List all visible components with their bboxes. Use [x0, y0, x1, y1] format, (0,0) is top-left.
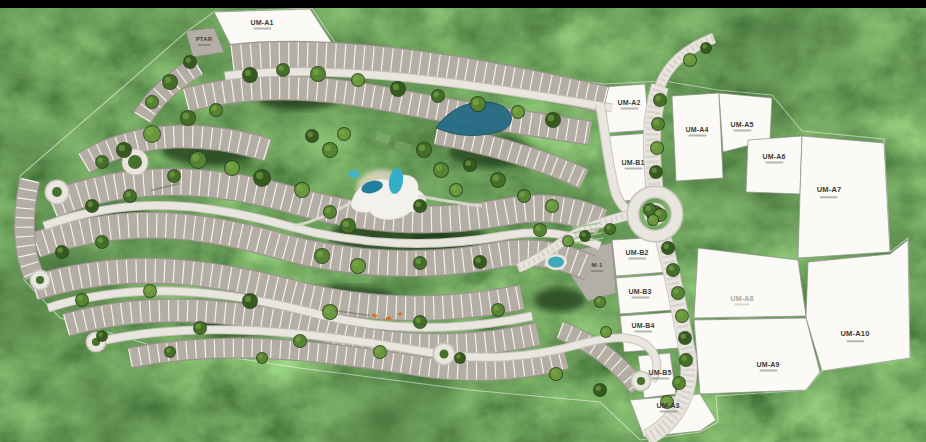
parcel-um-a4: [672, 93, 723, 181]
kids-pool: [348, 170, 360, 178]
masterplan-screenshot: UM-A1 PTAR UM-A2 UM-B1 UM-A4 UM-A5 UM-A6…: [0, 0, 926, 442]
parcel-um-a6: [746, 136, 802, 194]
parcel-um-a9: [694, 318, 820, 394]
top-black-bar: [0, 0, 926, 8]
pond: [545, 254, 567, 270]
site-plan-svg: [0, 0, 926, 442]
parcel-um-a7: [798, 136, 890, 258]
